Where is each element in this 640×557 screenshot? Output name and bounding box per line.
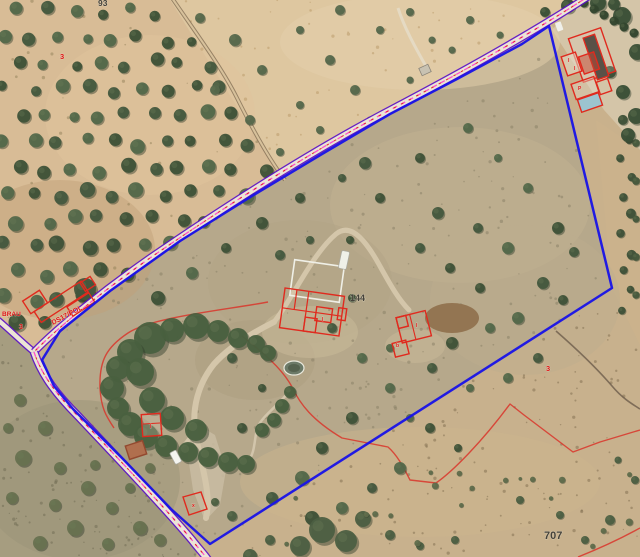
parcel-number-label: 707 bbox=[544, 530, 562, 542]
building-mark-label: b bbox=[396, 343, 399, 349]
parcel-number-label: 144 bbox=[350, 293, 365, 303]
street-address-label: 3 bbox=[546, 364, 550, 373]
street-address-label: BRAU bbox=[2, 311, 21, 318]
aerial-map-view[interactable]: 14470793BRAU3DS17/POL33IIPIIbIx bbox=[0, 0, 640, 557]
parcel-number-label: 93 bbox=[98, 0, 108, 8]
street-address-label: 3 bbox=[19, 324, 23, 331]
building-mark-label: x bbox=[192, 503, 195, 509]
cadastral-aerial-canvas[interactable]: 14470793BRAU3DS17/POL33IIPIIbIx bbox=[0, 0, 640, 557]
street-address-label: 3 bbox=[60, 52, 64, 61]
